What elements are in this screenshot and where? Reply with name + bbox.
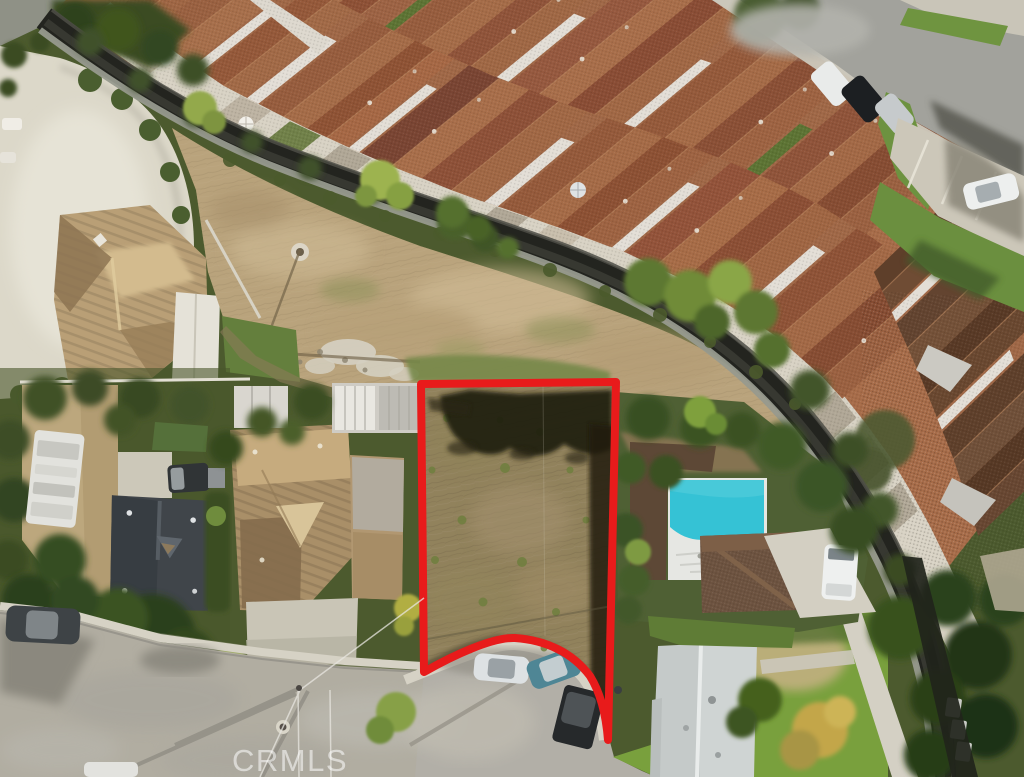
svg-text:CRMLS: CRMLS <box>232 743 348 777</box>
